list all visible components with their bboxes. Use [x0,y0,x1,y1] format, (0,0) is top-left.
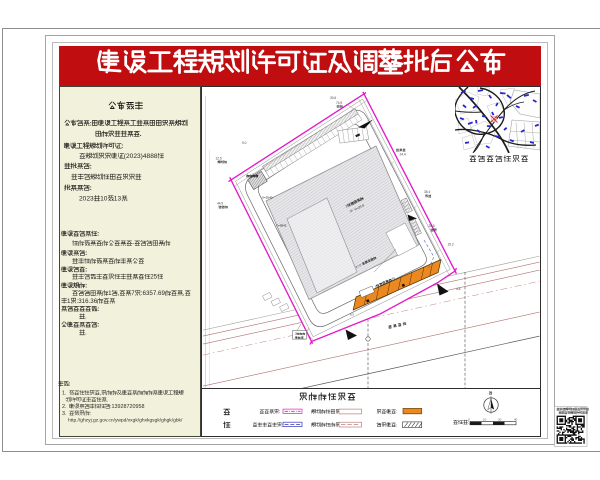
svg-text:3.: 3. [62,411,67,417]
svg-text::: : [69,382,71,388]
svg-text::: : [90,163,92,170]
svg-text:13: 13 [114,196,122,203]
svg-text::: : [85,250,87,257]
svg-text:4.8: 4.8 [456,287,461,291]
svg-text:9.0: 9.0 [242,141,247,145]
svg-text::: : [121,143,123,150]
svg-text:30.6: 30.6 [330,96,336,100]
svg-text:,: , [183,290,185,297]
svg-text:.: . [107,397,109,403]
svg-text:.: . [85,330,87,337]
svg-text::: : [85,267,87,274]
svg-text::: : [97,322,99,329]
svg-text:0: 0 [468,417,470,421]
svg-text:.: . [140,131,142,138]
svg-text:74.9: 74.9 [336,101,342,105]
svg-text::: : [396,410,397,415]
svg-text:,: , [118,290,120,297]
svg-text:X=2540: X=2540 [262,196,273,200]
svg-text::: : [90,120,92,127]
svg-text::13928720958: :13928720958 [110,404,144,410]
svg-text::: : [90,185,92,192]
svg-text:10: 10 [483,417,487,421]
svg-text:24.4: 24.4 [400,152,406,156]
svg-text:http.//ghzyj.gz.gov.cn/ywpd/xx: http.//ghzyj.gz.gov.cn/ywpd/xxgk/ghxkgsg… [68,417,183,423]
svg-text:,: , [100,391,102,397]
svg-text:25: 25 [150,274,157,281]
svg-text:40: 40 [514,417,518,421]
svg-text:1.: 1. [62,391,67,397]
svg-text::: : [396,423,397,428]
svg-text:7: 7 [131,290,135,297]
svg-text:20: 20 [498,417,502,421]
svg-text::: : [90,411,92,417]
svg-text:6.5: 6.5 [350,312,354,316]
svg-text::: : [97,306,99,313]
svg-text:12.5: 12.5 [216,156,222,160]
svg-text:-: - [132,240,134,247]
svg-text::: : [85,283,87,290]
svg-text:10: 10 [100,196,108,203]
svg-text:28.6: 28.6 [429,224,435,228]
svg-text:2.: 2. [62,404,67,410]
svg-text::6357.69: :6357.69 [141,290,166,297]
svg-text:2023: 2023 [79,196,94,203]
svg-text:(2023)4888: (2023)4888 [124,153,158,160]
svg-text:35.4: 35.4 [424,190,430,194]
svg-text::316.36: :316.36 [77,298,98,305]
svg-text:.: . [85,313,87,320]
svg-text:15.2: 15.2 [448,242,454,246]
svg-text:Y=3842: Y=3842 [276,224,287,228]
svg-text:44.9: 44.9 [217,201,223,205]
svg-text:1: 1 [67,298,71,305]
svg-text:1: 1 [108,290,112,297]
svg-text::: : [279,410,280,415]
svg-text::: : [97,231,99,238]
